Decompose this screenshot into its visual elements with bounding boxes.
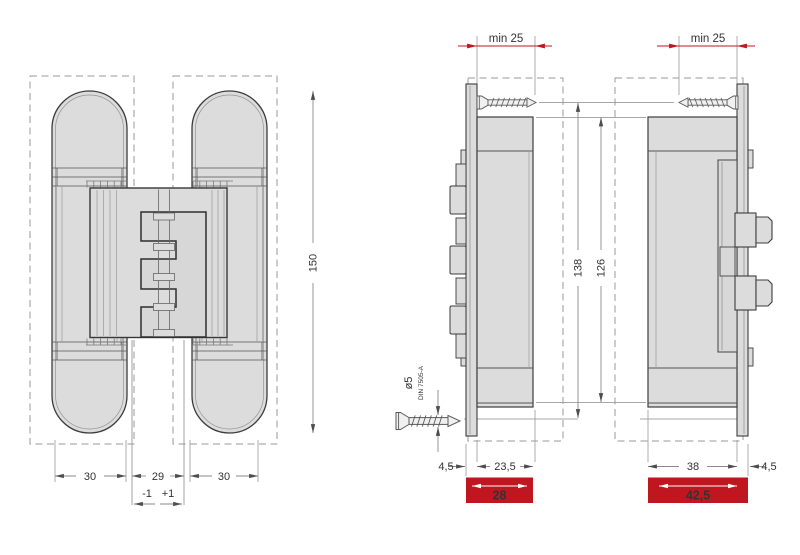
screw-note: ø5 DIN 7505-A [396,365,460,452]
section-frame: min 25 [450,33,563,441]
frame-knuckle-tabs [450,164,466,358]
dim-23-5-label: 23,5 [494,461,515,473]
tolerance-plus-label: +1 [162,488,175,500]
dim-gap-label: 29 [152,471,164,483]
frame-body [477,117,533,407]
tolerance-minus-label: -1 [142,488,152,500]
dims-bottom-door: 38 4,5 42,5 [648,410,777,503]
door-plate [737,84,753,436]
dim-left-label: 30 [84,471,96,483]
screw-diameter-label: ø5 [403,377,415,390]
dim-height-label: 150 [308,254,320,272]
min25-door-label: min 25 [691,33,726,45]
fixing-screw-icon [396,413,460,430]
dim-42-5-label: 42,5 [686,489,710,503]
knuckle-block [90,188,227,338]
dim-138-label: 138 [573,259,585,277]
dim-38-label: 38 [687,461,699,473]
dim-tolerance: -1 +1 [134,488,182,504]
hinge-technical-drawing: 150 30 29 30 -1 +1 [0,0,800,555]
dim-right-label: 30 [218,471,230,483]
min25-frame-label: min 25 [489,33,524,45]
dim-4-5-door-label: 4,5 [761,461,776,473]
drawing-svg: 150 30 29 30 -1 +1 [0,0,800,555]
section-door: min 25 [615,33,772,441]
front-view: 150 30 29 30 -1 +1 [30,76,320,505]
mounting-screw-icon [477,96,536,109]
screw-standard-label: DIN 7505-A [418,365,425,400]
dim-widths: 30 29 30 [55,440,258,483]
mounting-screw-icon [679,96,738,109]
dim-126-label: 126 [596,259,608,277]
dim-4-5-frame-label: 4,5 [438,461,453,473]
dim-28-label: 28 [493,489,507,503]
